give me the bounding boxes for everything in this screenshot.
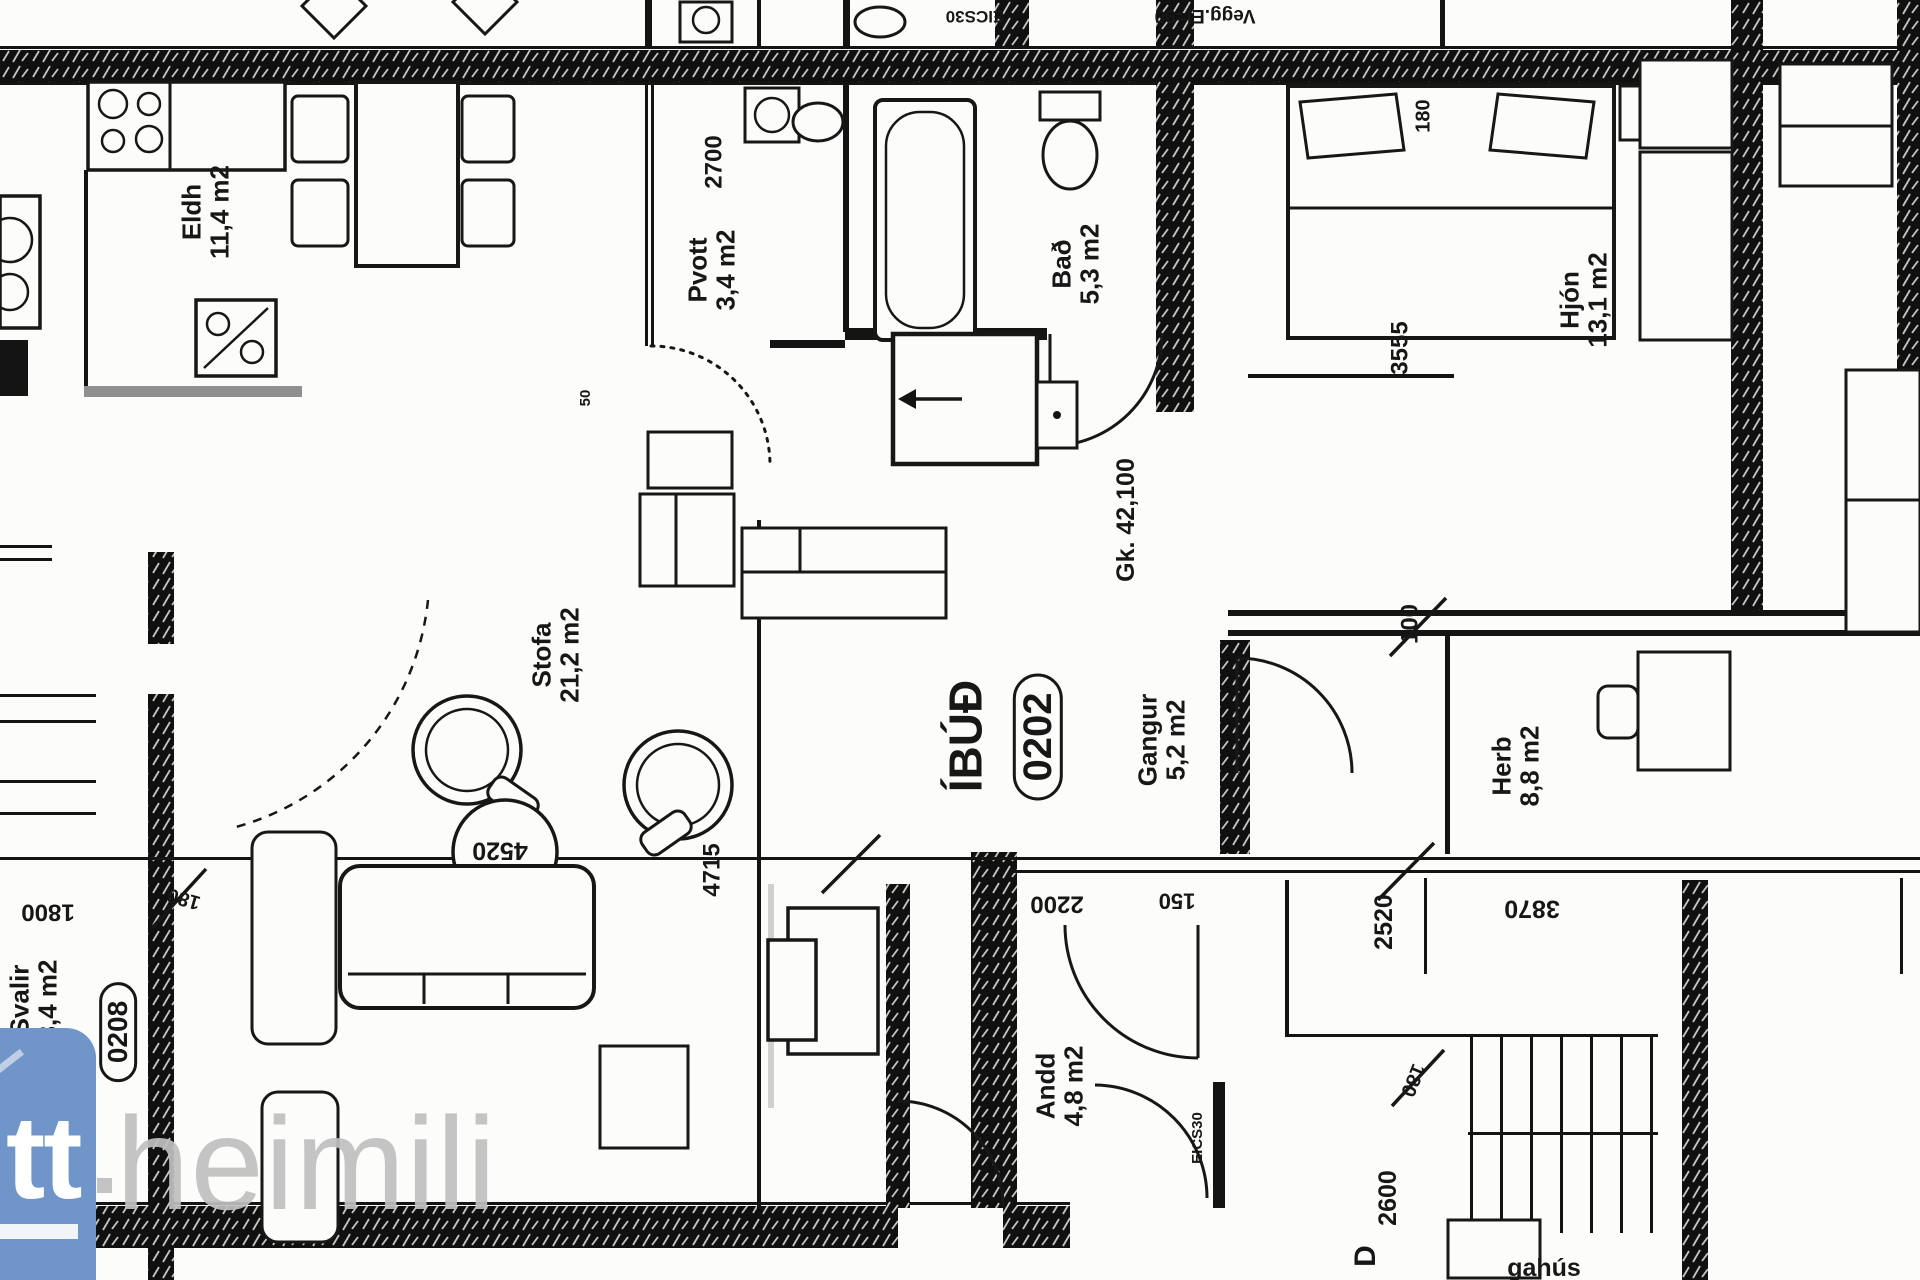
dim-150: 150 (1159, 889, 1196, 912)
sofa-icon (340, 866, 594, 1008)
logo-stripe (0, 1224, 78, 1239)
room-name: Gangur (1134, 694, 1162, 786)
tv-bench-icon (768, 908, 878, 1054)
armchair-icon (624, 731, 732, 859)
room-area: 5,2 m2 (1162, 694, 1190, 786)
room-label-hjon: Hjón 13,1 m2 (1556, 252, 1611, 347)
room-label-pvott: Pvott 3,4 m2 (684, 230, 739, 311)
room-label-bad: Bað 5,3 m2 (1048, 224, 1103, 305)
balcony-number-badge: 0208 (99, 982, 137, 1082)
dim-3870: 3870 (1504, 895, 1560, 922)
room-area: 13,1 m2 (1584, 252, 1612, 347)
toilet-icon (1040, 92, 1100, 189)
dim-4520: 4520 (472, 837, 528, 864)
dining-table-icon (292, 0, 517, 266)
room-label-herb: Herb 8,8 m2 (1488, 726, 1543, 807)
room-area: 8,8 m2 (1516, 726, 1544, 807)
fire-door-label: EICS30 (1190, 1112, 1206, 1164)
dim-100: 100 (1397, 604, 1422, 644)
dim-3555: 3555 (1387, 321, 1412, 374)
floor-plan-page: Eldh 11,4 m2 Pvott 3,4 m2 2700 Bað 5,3 m… (0, 0, 1920, 1280)
room-name: Hjón (1556, 252, 1584, 347)
room-area: 11,4 m2 (206, 165, 234, 259)
unit-label: ÍBÚÐ (942, 680, 991, 792)
room-area: 5,3 m2 (1076, 224, 1104, 305)
unit-number-badge: 0202 (1013, 674, 1063, 801)
room-name: Andd (1032, 1046, 1060, 1127)
dim-1800: 1800 (21, 899, 74, 924)
room-label-gangur: Gangur 5,2 m2 (1134, 694, 1189, 786)
dim-2600: 2600 (1375, 1170, 1402, 1226)
dim-4715: 4715 (699, 843, 724, 896)
room-name: Herb (1488, 726, 1516, 807)
kitchen-sink-icon (196, 300, 276, 376)
upper-basin-icon (855, 7, 905, 37)
watermark-logo: tt (0, 1028, 96, 1280)
sideboard-icon (252, 832, 336, 1044)
upper-floor-label-fragment: Vegg.EI=90 (1155, 5, 1256, 25)
desk-icon (1598, 652, 1730, 770)
room-area: 21,2 m2 (556, 607, 584, 702)
upper-floor-label-fragment: EICS30 (946, 7, 1005, 25)
kitchen-counter-icon (88, 82, 285, 170)
washbasin-icon (793, 103, 843, 141)
room-label-eldh: Eldh 11,4 m2 (178, 165, 233, 259)
wardrobe-icon (1640, 60, 1732, 340)
shelf-unit-icon (640, 432, 734, 586)
bathtub-icon (875, 100, 975, 340)
dim-180-closet: 180 (1413, 99, 1434, 132)
dim-2200: 2200 (1030, 891, 1083, 916)
door-letter-fragment: D (1350, 1245, 1382, 1267)
room-area: 3,4 m2 (712, 230, 740, 311)
room-label-stofa: Stofa 21,2 m2 (528, 607, 583, 702)
stairwell-label-fragment: gahús (1507, 1255, 1581, 1280)
logo-slash-icon (0, 1049, 24, 1090)
room-name: Pvott (684, 230, 712, 311)
level-mark: Gk. 42,100 (1113, 458, 1140, 582)
side-table-icon (600, 1046, 688, 1148)
room-name: Eldh (178, 165, 206, 259)
room-label-andd: Andd 4,8 m2 (1032, 1046, 1087, 1127)
room-name: Bað (1048, 224, 1076, 305)
fridge-icon (0, 196, 40, 328)
dim-50: 50 (578, 390, 594, 407)
dim-2700: 2700 (701, 135, 726, 188)
logo-text: tt (6, 1090, 81, 1226)
room-name: Stofa (528, 607, 556, 702)
watermark-brand-text: heimili (116, 1088, 497, 1239)
watermark-dot-icon (97, 1178, 112, 1193)
dim-2520: 2520 (1371, 894, 1398, 950)
room-area: 4,8 m2 (1060, 1046, 1088, 1127)
furniture (0, 0, 1920, 1278)
hall-closet-icon (742, 528, 946, 618)
